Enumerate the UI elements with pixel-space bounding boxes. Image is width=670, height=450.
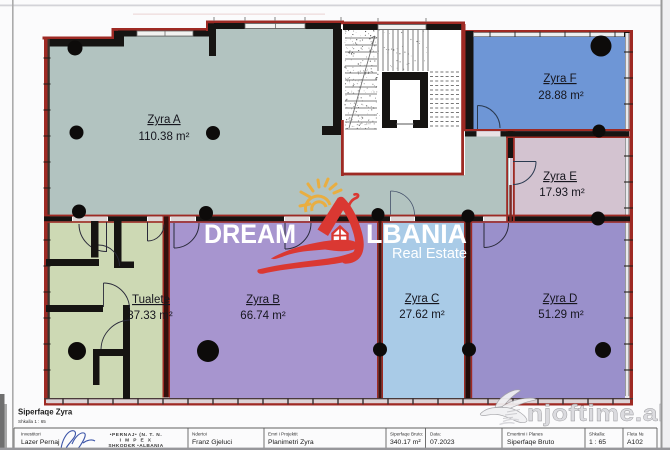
svg-text:Zyra B: Zyra B: [246, 294, 280, 306]
svg-text:340.17 m²: 340.17 m²: [390, 439, 421, 446]
svg-text:Franz Gjeluci: Franz Gjeluci: [192, 439, 233, 446]
svg-text:27.62 m²: 27.62 m²: [399, 309, 445, 321]
svg-text:Emri i Projektit: Emri i Projektit: [268, 432, 298, 437]
svg-text:110.38 m²: 110.38 m²: [139, 131, 190, 143]
svg-text:Planimetri Zyra: Planimetri Zyra: [268, 439, 314, 446]
svg-text:Data:: Data:: [430, 432, 441, 437]
svg-text:Shkalla 1 : 65: Shkalla 1 : 65: [18, 419, 46, 424]
svg-text:07.2023: 07.2023: [430, 439, 455, 446]
svg-text:28.88 m²: 28.88 m²: [538, 90, 584, 102]
svg-text:A102: A102: [627, 439, 643, 446]
svg-text:Emertimi i Planes: Emertimi i Planes: [507, 432, 543, 437]
svg-text:DREAM: DREAM: [204, 219, 296, 249]
svg-text:51.29 m²: 51.29 m²: [538, 309, 584, 321]
svg-text:Siperfaqe Bruto: Siperfaqe Bruto: [507, 439, 554, 446]
svg-text:Siperfaqe Bruto:: Siperfaqe Bruto:: [390, 432, 423, 437]
svg-text:Siperfaqe Zyra: Siperfaqe Zyra: [18, 408, 73, 417]
svg-text:Ndertoi: Ndertoi: [192, 432, 207, 437]
svg-text:Zyra E: Zyra E: [543, 171, 577, 183]
svg-text:Lazer Pernaj: Lazer Pernaj: [21, 439, 60, 446]
svg-text:Zyra F: Zyra F: [543, 73, 576, 85]
svg-text:37.33 m²: 37.33 m²: [127, 310, 173, 322]
svg-text:Tualete: Tualete: [132, 294, 170, 306]
svg-text:66.74 m²: 66.74 m²: [240, 310, 286, 322]
svg-text:Zyra D: Zyra D: [543, 293, 578, 305]
svg-text:Fleta №: Fleta №: [627, 432, 643, 437]
svg-text:Zyra A: Zyra A: [147, 114, 181, 126]
svg-text:17.93 m²: 17.93 m²: [539, 187, 585, 199]
svg-text:Real Estate: Real Estate: [392, 246, 467, 262]
svg-text:I M P E X: I M P E X: [120, 438, 153, 444]
svg-text:LBANIA: LBANIA: [366, 219, 467, 249]
svg-text:Zyra C: Zyra C: [405, 293, 440, 305]
svg-text:njoftime.al: njoftime.al: [527, 400, 666, 426]
svg-text:•PERNAЈ• (N. T. N.: •PERNAЈ• (N. T. N.: [110, 432, 163, 438]
svg-text:1 : 65: 1 : 65: [589, 439, 606, 446]
svg-text:Shkalla:: Shkalla:: [589, 432, 605, 437]
svg-text:Investitori: Investitori: [21, 432, 41, 437]
